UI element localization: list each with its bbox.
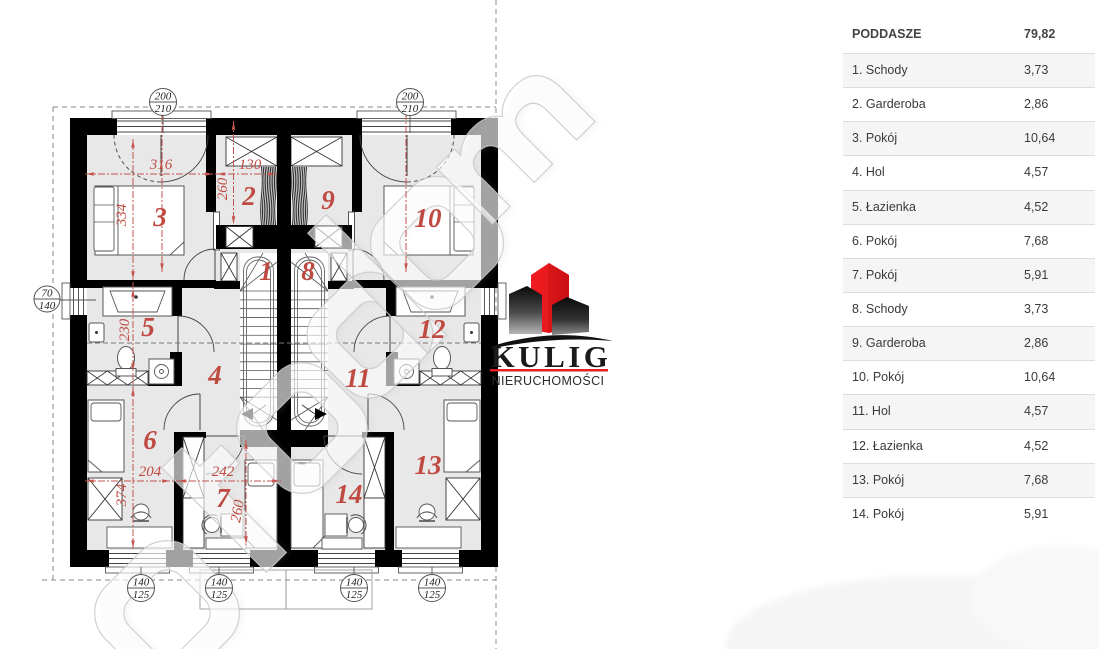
svg-text:1: 1 <box>259 256 273 286</box>
svg-text:5: 5 <box>141 312 155 342</box>
svg-text:125: 125 <box>211 589 228 601</box>
svg-text:125: 125 <box>133 589 150 601</box>
svg-text:130: 130 <box>239 157 262 173</box>
svg-text:14: 14 <box>336 479 363 509</box>
svg-text:334: 334 <box>114 203 130 227</box>
svg-text:140: 140 <box>424 577 441 589</box>
svg-text:125: 125 <box>346 589 363 601</box>
svg-text:KULIG: KULIG <box>491 339 612 374</box>
svg-text:200: 200 <box>155 91 172 103</box>
svg-text:NIERUCHOMOŚCI: NIERUCHOMOŚCI <box>492 373 605 388</box>
svg-text:140: 140 <box>133 577 150 589</box>
svg-text:3: 3 <box>152 202 167 232</box>
svg-text:10: 10 <box>415 203 443 233</box>
svg-text:242: 242 <box>212 464 235 480</box>
svg-text:2: 2 <box>241 181 256 211</box>
svg-text:8: 8 <box>301 256 315 286</box>
svg-text:13: 13 <box>415 450 442 480</box>
svg-text:374: 374 <box>114 483 130 507</box>
svg-text:7: 7 <box>216 483 231 513</box>
svg-text:140: 140 <box>211 577 228 589</box>
svg-text:210: 210 <box>155 103 172 115</box>
svg-text:70: 70 <box>42 288 54 300</box>
svg-text:260: 260 <box>215 177 231 200</box>
svg-text:204: 204 <box>139 464 162 480</box>
svg-text:6: 6 <box>143 425 157 455</box>
svg-text:11: 11 <box>345 363 371 393</box>
svg-text:316: 316 <box>149 157 173 173</box>
svg-text:9: 9 <box>321 185 335 215</box>
svg-text:230: 230 <box>117 318 133 341</box>
svg-text:140: 140 <box>39 300 56 312</box>
svg-text:125: 125 <box>424 589 441 601</box>
svg-text:200: 200 <box>402 91 419 103</box>
svg-text:12: 12 <box>419 314 446 344</box>
svg-text:210: 210 <box>402 103 419 115</box>
svg-text:4: 4 <box>207 360 222 390</box>
svg-text:140: 140 <box>346 577 363 589</box>
